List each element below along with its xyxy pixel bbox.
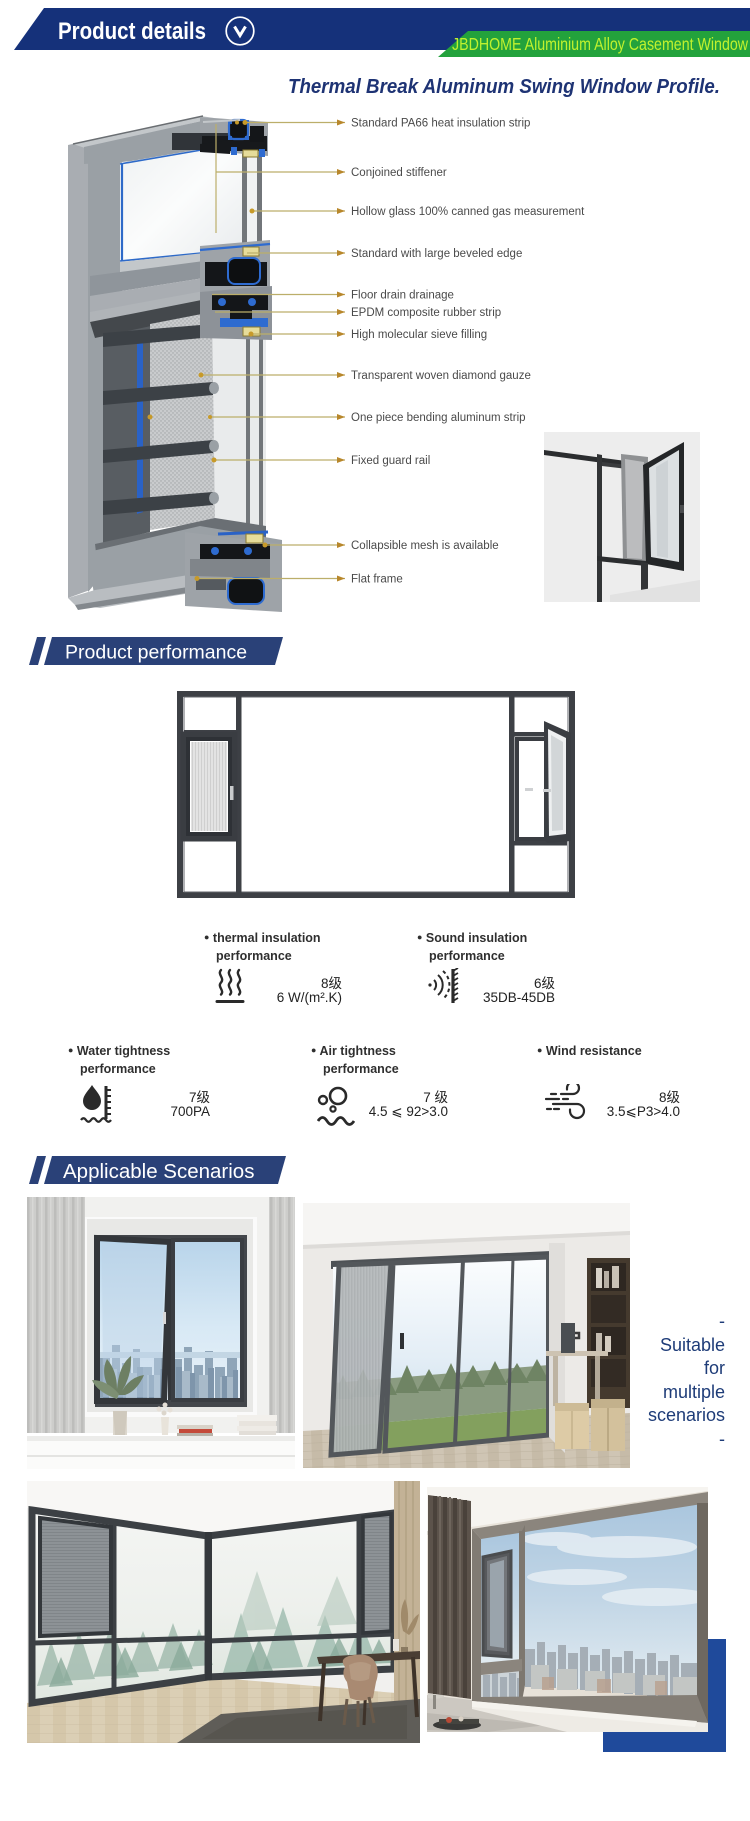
svg-text:Applicable Scenarios: Applicable Scenarios xyxy=(63,1160,254,1183)
svg-text:JBDHOME Aluminium Alloy Caseme: JBDHOME Aluminium Alloy Casement Window xyxy=(452,34,748,54)
svg-text:Conjoined stiffener: Conjoined stiffener xyxy=(351,167,447,179)
svg-text:Standard PA66 heat insulation: Standard PA66 heat insulation strip xyxy=(351,118,530,130)
svg-text:Thermal Break Aluminum Swing W: Thermal Break Aluminum Swing Window Prof… xyxy=(288,75,720,98)
svg-text:Flat frame: Flat frame xyxy=(351,574,403,586)
svg-text:Transparent woven diamond gauz: Transparent woven diamond gauze xyxy=(351,370,531,382)
svg-text:EPDM composite rubber strip: EPDM composite rubber strip xyxy=(351,307,501,319)
svg-text:Standard with large beveled ed: Standard with large beveled edge xyxy=(351,248,522,260)
svg-text:Fixed guard rail: Fixed guard rail xyxy=(351,455,430,467)
svg-text:Collapsible mesh is available: Collapsible mesh is available xyxy=(351,540,499,552)
svg-text:High molecular sieve filling: High molecular sieve filling xyxy=(351,329,487,341)
svg-text:One piece bending aluminum str: One piece bending aluminum strip xyxy=(351,412,526,424)
svg-text:Hollow glass 100% canned gas m: Hollow glass 100% canned gas measurement xyxy=(351,206,585,218)
svg-text:Product performance: Product performance xyxy=(65,642,247,664)
svg-text:Product details: Product details xyxy=(58,18,206,45)
svg-text:Floor drain drainage: Floor drain drainage xyxy=(351,290,454,302)
